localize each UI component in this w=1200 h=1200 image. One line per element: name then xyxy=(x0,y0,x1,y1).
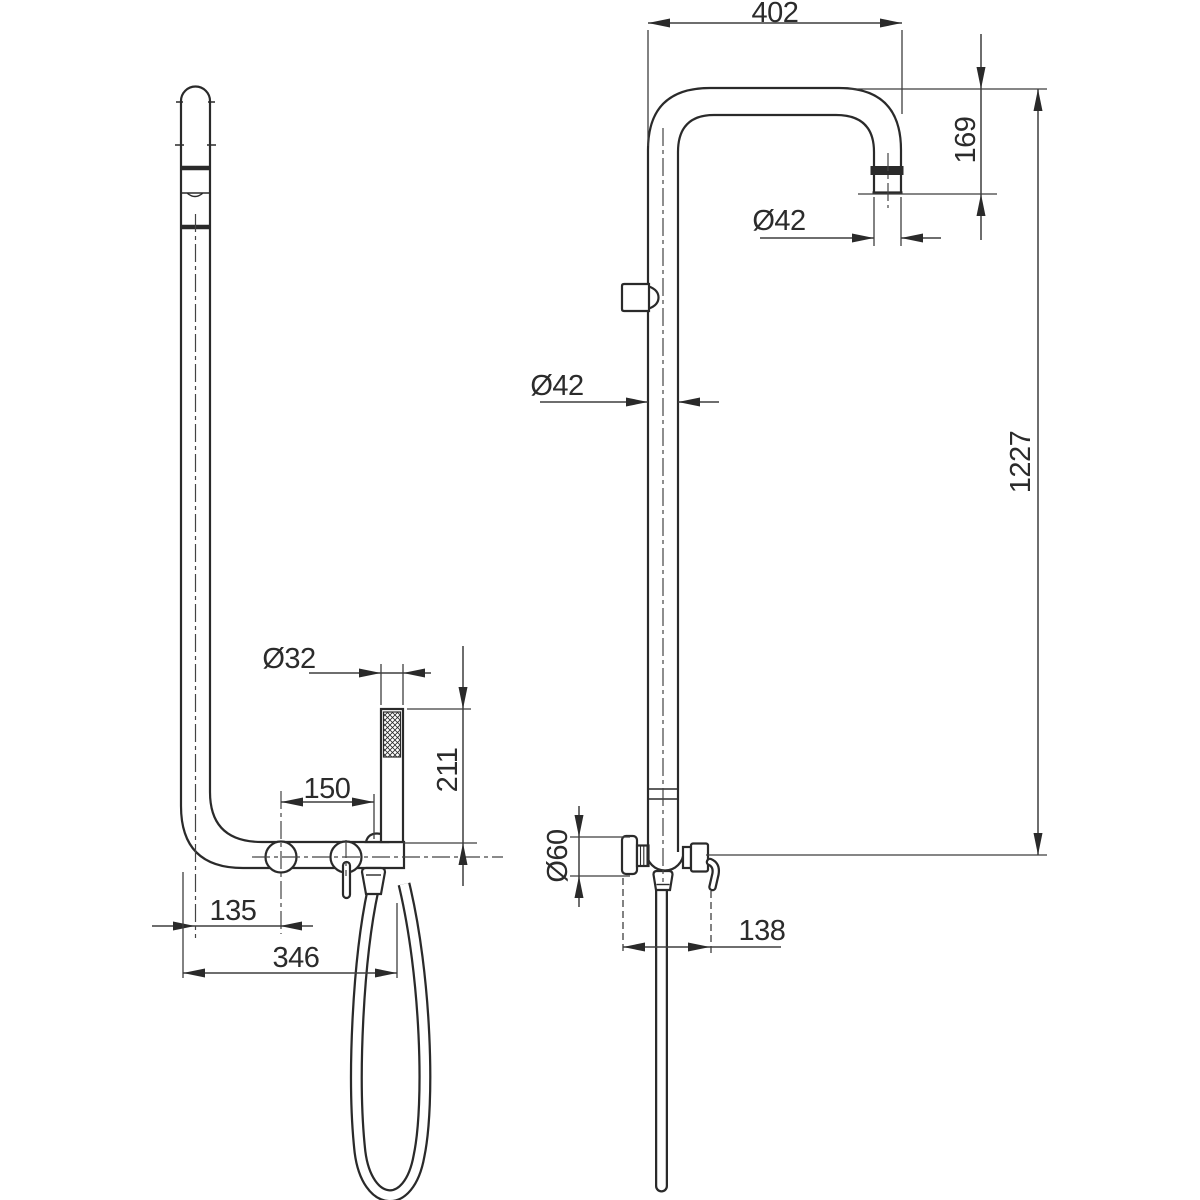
dimension-dia42-head: Ø42 xyxy=(752,197,941,246)
dimension-211: 211 xyxy=(403,646,477,886)
dimension-135: 135 xyxy=(152,895,313,931)
dim-label-138: 138 xyxy=(739,915,786,947)
dim-label-346: 346 xyxy=(273,942,320,974)
dim-label-135: 135 xyxy=(210,895,257,927)
spray-face-hatch xyxy=(384,712,401,757)
valve-body-bulge xyxy=(647,852,684,871)
side-view: Ø32 211 150 135 xyxy=(152,87,503,1196)
valve-handle-front xyxy=(710,862,716,887)
dimension-169: 169 xyxy=(858,34,997,240)
column-pipe-side xyxy=(181,87,404,869)
dim-label-1227: 1227 xyxy=(1005,431,1037,494)
dim-label-dia42-pipe: Ø42 xyxy=(530,370,583,402)
technical-drawing-page: Ø32 211 150 135 xyxy=(0,0,1200,1200)
dim-label-dia42-head: Ø42 xyxy=(752,205,805,237)
dimension-dia42-pipe: Ø42 xyxy=(530,370,719,407)
dim-label-402: 402 xyxy=(752,0,799,29)
dim-label-dia32: Ø32 xyxy=(262,643,315,675)
centerlines-side xyxy=(196,214,504,938)
head-nut-band xyxy=(871,166,904,175)
ribbed-connector-front xyxy=(637,846,649,867)
shower-column-drawing: Ø32 211 150 135 xyxy=(0,0,1200,1200)
dimension-150: 150 xyxy=(281,773,374,839)
riser-pipe-front xyxy=(648,88,904,853)
dim-label-169: 169 xyxy=(950,117,982,164)
dim-label-dia60: Ø60 xyxy=(542,829,574,882)
diverter-knob-front xyxy=(622,284,659,311)
mixer-valve-front xyxy=(622,836,716,890)
wall-flange-front xyxy=(622,836,637,874)
dimension-138: 138 xyxy=(623,878,785,954)
dim-label-211: 211 xyxy=(432,748,464,793)
dimension-dia60: Ø60 xyxy=(542,806,630,907)
valve-right-neck xyxy=(683,847,691,868)
shower-hose-side xyxy=(356,884,424,1196)
hose-connector-side xyxy=(362,868,385,894)
valve-right-cap xyxy=(691,844,708,872)
dimension-dia32: Ø32 xyxy=(262,643,431,705)
front-view: 402 169 Ø42 Ø42 xyxy=(530,0,1047,1186)
dim-label-150: 150 xyxy=(304,773,351,805)
mixer-handle-side xyxy=(343,862,350,898)
dimension-1227: 1227 xyxy=(1005,89,1043,855)
